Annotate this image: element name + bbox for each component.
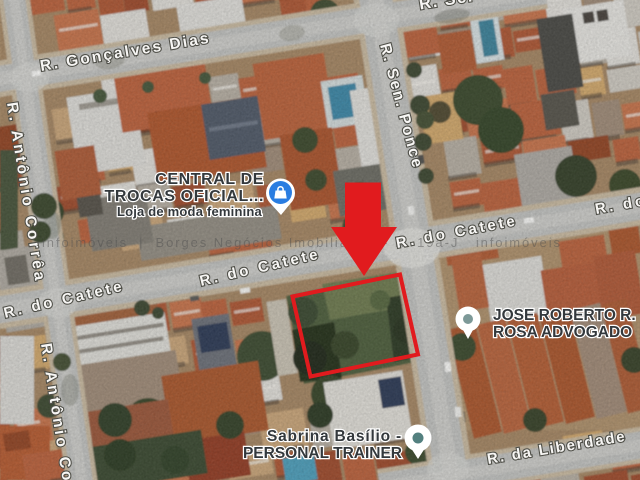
svg-text:CENTRAL DE: CENTRAL DE — [155, 171, 264, 188]
svg-text:JOSE ROBERTO R.: JOSE ROBERTO R. — [493, 307, 636, 324]
svg-text:ROSA ADVOGADO: ROSA ADVOGADO — [493, 324, 632, 341]
svg-text:PERSONAL TRAINER: PERSONAL TRAINER — [243, 445, 402, 462]
svg-text:infoimóveis | Borges Negócio: infoimóveis | Borges Negócios Imobiliári… — [42, 235, 560, 250]
svg-text:TROCAS OFICIAL...: TROCAS OFICIAL... — [104, 188, 264, 205]
svg-text:Sabrina Basílio -: Sabrina Basílio - — [267, 428, 402, 445]
svg-text:Loja de moda feminina: Loja de moda feminina — [117, 204, 263, 219]
